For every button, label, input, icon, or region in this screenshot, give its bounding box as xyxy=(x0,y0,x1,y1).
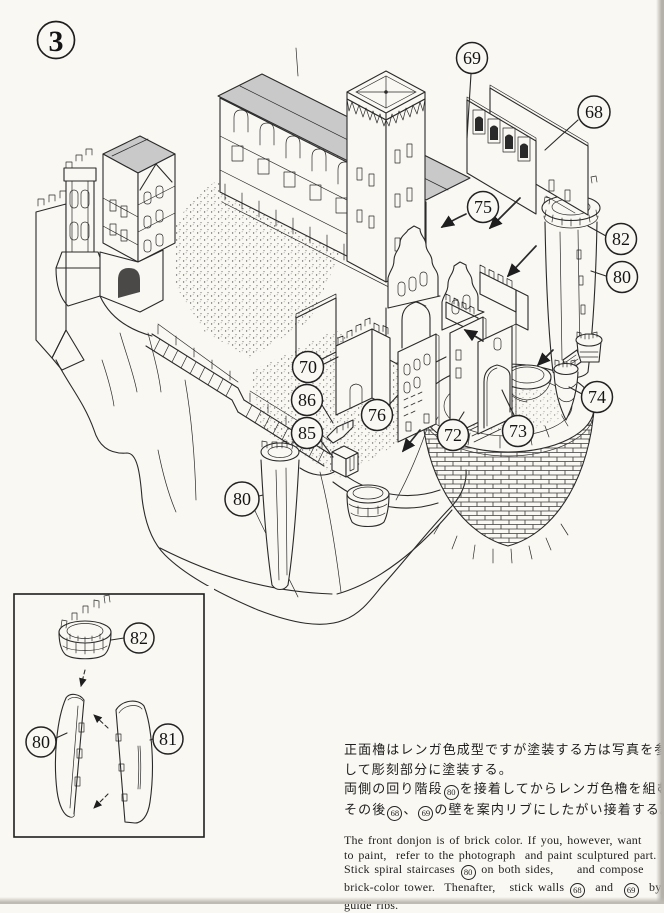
callout-76: 76 xyxy=(362,400,393,431)
gatehouse xyxy=(56,136,175,336)
instruction-line: Stick spiral staircases 80 on both sides… xyxy=(344,862,662,880)
japanese-instructions: 正面櫓はレンガ色成型ですが塗装する方は写真を参考にして彫刻部分に塗装する。両側の… xyxy=(344,740,662,821)
scan-edge-bottom xyxy=(0,897,664,904)
scan-edge-right xyxy=(656,0,664,904)
svg-text:70: 70 xyxy=(299,357,317,377)
svg-text:82: 82 xyxy=(612,229,630,249)
callout-72: 72 xyxy=(438,420,469,451)
instruction-line: brick-color tower. Thenafter, stick wall… xyxy=(344,880,662,898)
instruction-text-block: 正面櫓はレンガ色成型ですが塗装する方は写真を参考にして彫刻部分に塗装する。両側の… xyxy=(344,740,662,913)
bottom-tower-80 xyxy=(261,441,299,590)
callout-80-right: 80 xyxy=(607,262,638,293)
callout-82: 82 xyxy=(606,224,637,255)
inset-callout-80: 80 xyxy=(26,727,56,757)
instruction-line: to paint, refer to the photograph and pa… xyxy=(344,848,662,863)
channel-block-85 xyxy=(332,446,358,477)
svg-text:76: 76 xyxy=(368,405,386,425)
svg-text:80: 80 xyxy=(613,267,631,287)
window-wall-76 xyxy=(398,334,439,442)
inset-callout-82: 82 xyxy=(124,623,154,653)
svg-text:80: 80 xyxy=(233,489,251,509)
svg-text:80: 80 xyxy=(32,732,50,752)
svg-text:75: 75 xyxy=(474,197,492,217)
callout-73: 73 xyxy=(503,416,534,447)
callout-86: 86 xyxy=(292,385,323,416)
callout-80-bottom: 80 xyxy=(225,482,259,516)
instruction-line: その後68、69の壁を案内リブにしたがい接着する。 xyxy=(344,800,662,821)
svg-text:82: 82 xyxy=(130,628,148,648)
instruction-line: して彫刻部分に塗装する。 xyxy=(344,760,662,780)
svg-text:86: 86 xyxy=(298,390,316,410)
callout-75: 75 xyxy=(468,192,499,223)
svg-text:73: 73 xyxy=(509,421,527,441)
instruction-line: The front donjon is of brick color. If y… xyxy=(344,833,662,848)
small-brick-turret xyxy=(347,485,389,527)
instruction-line: 両側の回り階段80を接着してからレンガ色櫓を組む。 xyxy=(344,779,662,800)
svg-text:72: 72 xyxy=(444,425,462,445)
circled-part-number: 68 xyxy=(387,806,402,821)
svg-text:81: 81 xyxy=(159,729,177,749)
circled-part-number: 69 xyxy=(418,806,433,821)
callout-74: 74 xyxy=(582,382,613,413)
instruction-line: 正面櫓はレンガ色成型ですが塗装する方は写真を参考に xyxy=(344,740,662,760)
callout-70: 70 xyxy=(293,352,324,383)
svg-text:85: 85 xyxy=(298,423,316,443)
circled-part-number: 80 xyxy=(444,785,459,800)
svg-text:3: 3 xyxy=(49,25,64,58)
svg-text:74: 74 xyxy=(588,387,606,407)
callout-69: 69 xyxy=(457,43,488,74)
callout-85: 85 xyxy=(292,418,323,449)
step-number-badge: 3 xyxy=(38,22,75,59)
circled-part-number: 69 xyxy=(624,883,639,898)
inset-diagram: 82 80 81 xyxy=(10,586,214,848)
circled-part-number: 68 xyxy=(570,883,585,898)
svg-text:69: 69 xyxy=(463,48,481,68)
instruction-page: { "page": { "step_number": "3" }, "main_… xyxy=(0,0,664,904)
circled-part-number: 80 xyxy=(461,865,476,880)
callout-68: 68 xyxy=(578,96,610,128)
inset-callout-81: 81 xyxy=(153,724,183,754)
svg-text:68: 68 xyxy=(585,102,603,122)
